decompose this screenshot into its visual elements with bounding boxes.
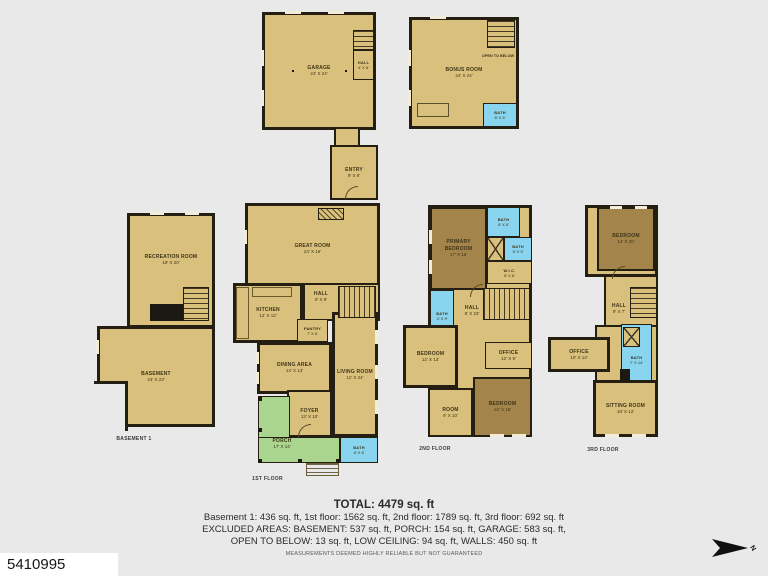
room-label: HALL 9' X 7' bbox=[606, 303, 632, 315]
room-living-room: LIVING ROOM 11' X 24' bbox=[332, 312, 378, 437]
plan-caption: 1ST FLOOR bbox=[240, 476, 295, 482]
room-first-bath: BATH 8' X 6' bbox=[340, 437, 378, 463]
room-label: HALL 9' X 23' bbox=[455, 305, 489, 317]
room-pantry: PANTRY 7' X 6' bbox=[297, 319, 328, 342]
room-label: BATH 8' X 5' bbox=[512, 244, 524, 254]
stair-core bbox=[150, 304, 183, 321]
room-sitting-room: SITTING ROOM 18' X 12' bbox=[593, 380, 658, 437]
room-label: BEDROOM 12' X 15' bbox=[489, 401, 517, 413]
kitchen-counter bbox=[252, 287, 292, 297]
stairs bbox=[183, 287, 209, 321]
room-third-office: OFFICE 10' X 14' bbox=[548, 337, 610, 372]
stairs bbox=[487, 20, 515, 48]
window-mark bbox=[635, 206, 647, 209]
entry-steps bbox=[306, 463, 339, 476]
garage-connector bbox=[334, 127, 360, 147]
room-third-bedroom: BEDROOM 14' X 20' bbox=[597, 207, 655, 271]
window-mark bbox=[328, 11, 344, 14]
compass: N bbox=[710, 536, 762, 562]
porch-post bbox=[258, 397, 262, 401]
window-mark bbox=[150, 212, 164, 215]
room-label: HALL 9' X 9' bbox=[305, 291, 337, 303]
plan-caption: 3RD FLOOR bbox=[578, 447, 628, 453]
ceiling-marker bbox=[292, 70, 294, 72]
room-label: BATH 7' X 14' bbox=[630, 355, 643, 365]
porch-post bbox=[258, 428, 262, 432]
room-bath-mid: BATH 8' X 5' bbox=[504, 237, 532, 261]
stairs bbox=[630, 287, 657, 318]
window-mark bbox=[610, 206, 622, 209]
ceiling-marker bbox=[345, 70, 347, 72]
chimney-block bbox=[620, 369, 630, 381]
room-garage-hall: HALL 4' X 8' bbox=[353, 50, 374, 80]
porch-post bbox=[298, 459, 302, 463]
room-label: OFFICE 10' X 14' bbox=[569, 349, 589, 361]
window-mark bbox=[490, 434, 504, 437]
room-label: BATH 8' X 6' bbox=[353, 445, 365, 455]
excluded-areas-line: EXCLUDED AREAS: BASEMENT: 537 sq. ft, PO… bbox=[0, 524, 768, 535]
floor-areas-line: Basement 1: 436 sq. ft, 1st floor: 1562 … bbox=[0, 512, 768, 523]
window-mark bbox=[408, 50, 411, 66]
window-mark bbox=[375, 400, 378, 414]
room-bedroom-right: BEDROOM 12' X 15' bbox=[473, 377, 532, 437]
stairs bbox=[338, 286, 376, 318]
room-label: RECREATION ROOM 19' X 20' bbox=[145, 254, 198, 266]
window-mark bbox=[96, 340, 99, 354]
window-mark bbox=[512, 434, 526, 437]
room-label: ROOM 9' X 10' bbox=[442, 407, 458, 419]
room-label: BATH 8' X 6' bbox=[498, 217, 510, 227]
room-label: BEDROOM 12' X 13' bbox=[417, 351, 445, 363]
open-to-below-label: OPEN TO BELOW bbox=[478, 54, 518, 59]
window-mark bbox=[408, 90, 411, 106]
room-label: KITCHEN 12' X 12' bbox=[256, 307, 280, 319]
room-bath-top: BATH 8' X 6' bbox=[487, 207, 520, 237]
room-label: FOYER 13' X 10' bbox=[300, 408, 318, 420]
room-label: SITTING ROOM 18' X 12' bbox=[606, 403, 645, 415]
room-label: BATH 4' X 9' bbox=[436, 311, 448, 321]
shower-stall bbox=[623, 327, 640, 347]
room-label: LIVING ROOM 11' X 24' bbox=[337, 369, 373, 381]
stairs bbox=[353, 30, 374, 50]
photo-id: 5410995 bbox=[7, 556, 65, 573]
window-mark bbox=[375, 330, 378, 344]
hatch-area bbox=[318, 208, 344, 220]
window-mark bbox=[375, 365, 378, 379]
total-area: TOTAL: 4479 sq. ft bbox=[0, 499, 768, 511]
porch-post bbox=[336, 459, 340, 463]
room-label: BEDROOM 14' X 20' bbox=[612, 233, 640, 245]
room-label: GREAT ROOM 24' X 16' bbox=[294, 243, 330, 255]
room-label: BASEMENT 24' X 23' bbox=[141, 371, 171, 383]
window-mark bbox=[632, 434, 646, 437]
window-mark bbox=[430, 16, 446, 19]
plan-caption: 2ND FLOOR bbox=[410, 446, 460, 452]
window-mark bbox=[256, 372, 259, 384]
room-label: BATH 8' X 6' bbox=[494, 110, 506, 120]
room-primary-bedroom: PRIMARY BEDROOM 17' X 15' bbox=[430, 207, 487, 290]
window-mark bbox=[429, 260, 432, 274]
stairs bbox=[483, 288, 530, 320]
room-label: PORCH 17' X 14' bbox=[262, 438, 302, 450]
room-dining-area: DINING AREA 14' X 13' bbox=[257, 342, 332, 394]
room-label: W.I.C. 8' X 8' bbox=[503, 268, 515, 278]
window-mark bbox=[285, 11, 301, 14]
porch-post bbox=[258, 459, 262, 463]
shower-stall bbox=[487, 237, 504, 261]
window-mark bbox=[261, 50, 264, 66]
excluded-areas-line2: OPEN TO BELOW: 13 sq. ft, LOW CEILING: 9… bbox=[0, 536, 768, 547]
plan-caption: BASEMENT 1 bbox=[112, 436, 156, 442]
room-wic: W.I.C. 8' X 8' bbox=[487, 261, 532, 284]
room-label: HALL 4' X 8' bbox=[358, 60, 369, 70]
kitchen-counter bbox=[236, 287, 249, 339]
window-mark bbox=[256, 352, 259, 364]
room-label: OFFICE 12' X 9' bbox=[499, 350, 519, 362]
room-bedroom-left: BEDROOM 12' X 13' bbox=[403, 325, 458, 388]
floorplan-canvas: GARAGE 24' X 24' HALL 4' X 8' BONUS ROOM… bbox=[0, 0, 768, 576]
room-label: GARAGE 24' X 24' bbox=[307, 65, 330, 77]
room-great-room: GREAT ROOM 24' X 16' bbox=[245, 203, 380, 295]
photo-id-bar: 5410995 bbox=[0, 553, 118, 576]
room-label: PANTRY 7' X 6' bbox=[304, 326, 321, 336]
area-summary: TOTAL: 4479 sq. ft Basement 1: 436 sq. f… bbox=[0, 499, 768, 557]
window-mark bbox=[605, 434, 619, 437]
room-label: ENTRY 9' X 8' bbox=[345, 167, 363, 179]
room-bonus-bath: BATH 8' X 6' bbox=[483, 103, 517, 127]
window-mark bbox=[261, 90, 264, 106]
window-mark bbox=[244, 230, 247, 244]
room-label: BONUS ROOM 24' X 24' bbox=[446, 67, 483, 79]
window-mark bbox=[429, 230, 432, 244]
room-label: DINING AREA 14' X 13' bbox=[277, 362, 312, 374]
room-office-second: OFFICE 12' X 9' bbox=[485, 342, 532, 369]
rug-outline bbox=[417, 103, 449, 117]
wall-step bbox=[94, 381, 128, 431]
room-label: PRIMARY BEDROOM 17' X 15' bbox=[432, 239, 485, 257]
room-room: ROOM 9' X 10' bbox=[428, 388, 473, 437]
window-mark bbox=[185, 212, 199, 215]
